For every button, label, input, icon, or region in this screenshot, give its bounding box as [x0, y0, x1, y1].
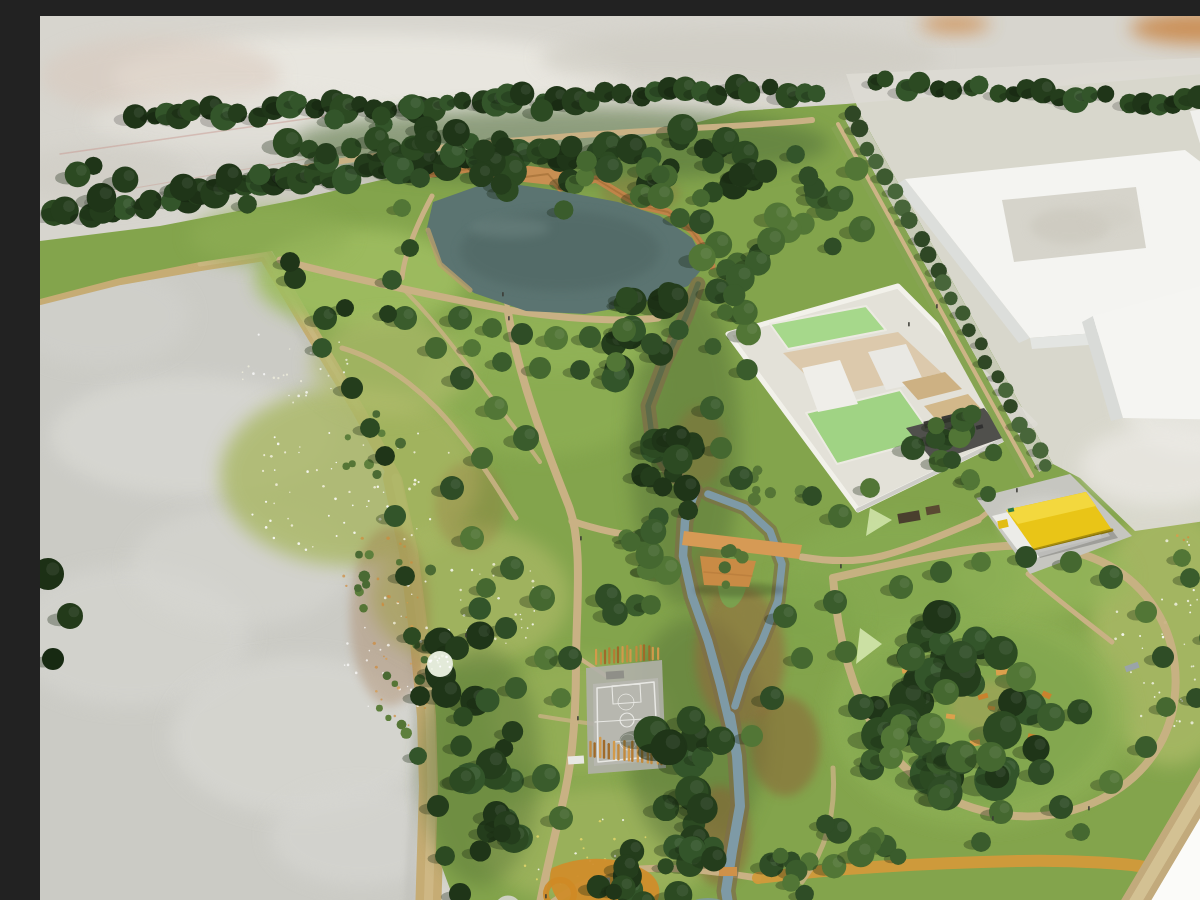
park-aerial-rendering	[40, 16, 1200, 900]
rendering-canvas	[40, 16, 1200, 900]
blossom-tree	[427, 651, 453, 677]
